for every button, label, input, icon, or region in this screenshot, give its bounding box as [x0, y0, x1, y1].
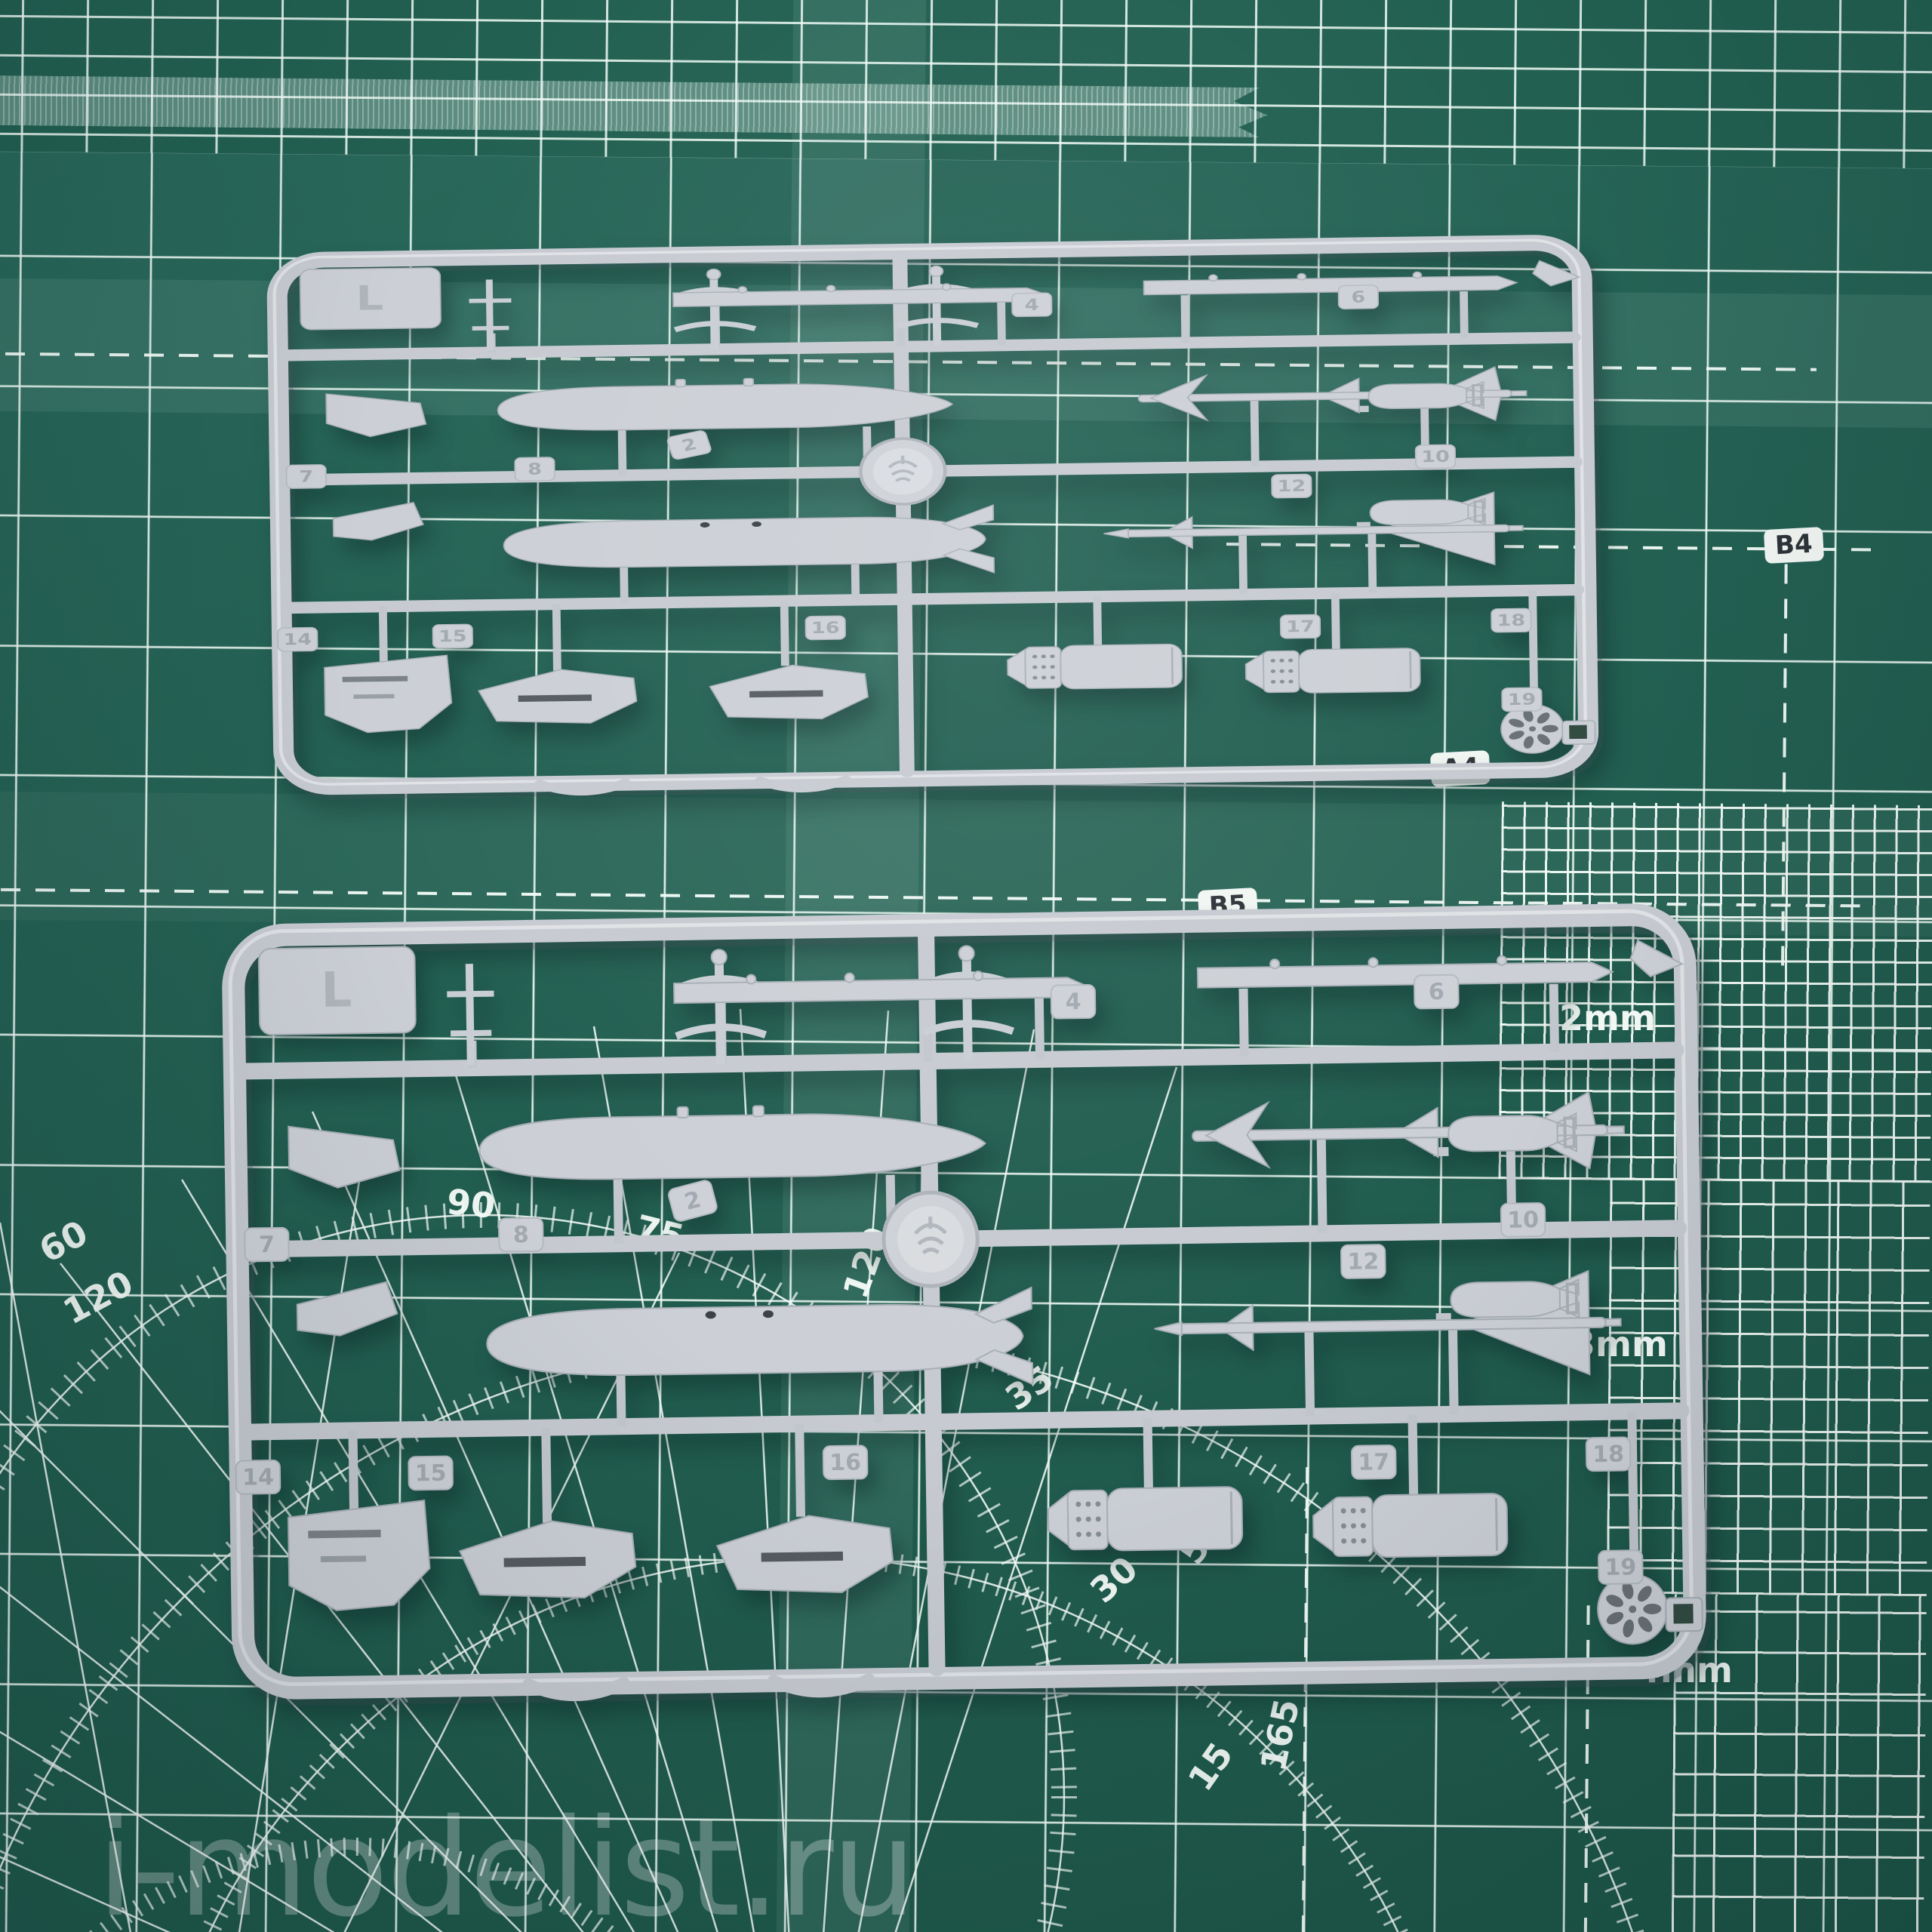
- sprue-lower: [228, 910, 1703, 1700]
- photo-scene: 60 120 90 75 120 35 30 50 165 15 2mm 3mm…: [0, 0, 1932, 1932]
- sprues: L: [0, 0, 1932, 1932]
- watermark: i-modelist.ru: [97, 1790, 915, 1932]
- sprue-upper: [272, 239, 1595, 795]
